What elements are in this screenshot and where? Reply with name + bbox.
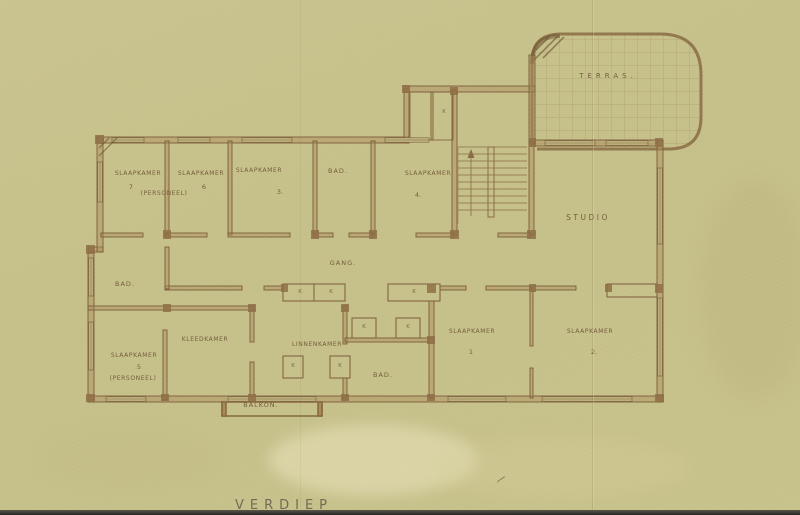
label-bad-boven: BAD.	[328, 168, 348, 175]
scanned-floor-plan-photo: TERRAS. STUDIO GANG. SLAAPKAMER 7 (PERSO…	[0, 0, 800, 515]
number-slaapkamer-6: 6	[202, 184, 206, 191]
label-slaapkamer-4: SLAAPKAMER	[405, 171, 451, 177]
terrace-tile-grid	[532, 34, 701, 149]
sublabel-personeel-7: (PERSONEEL)	[141, 191, 188, 197]
number-slaapkamer-1: 1	[469, 349, 473, 356]
label-gang: GANG.	[330, 260, 356, 267]
number-slaapkamer-7: 7	[129, 184, 133, 191]
label-slaapkamer-1: SLAAPKAMER	[449, 329, 495, 335]
label-balkon: BALKON.	[243, 402, 278, 409]
closet-k-label: K	[362, 325, 366, 331]
label-linnenkamer: LINNENKAMER	[292, 342, 342, 348]
closet-k-label: K	[291, 364, 295, 370]
label-slaapkamer-3: SLAAPKAMER	[236, 168, 282, 174]
closet-k-label: K	[298, 290, 302, 296]
closet-k-label: K	[329, 290, 333, 296]
number-slaapkamer-4: 4.	[415, 192, 421, 199]
photo-edge	[0, 510, 800, 515]
closet-k-label: K	[406, 325, 410, 331]
closet-k-label: K	[442, 110, 446, 116]
sublabel-personeel-5: (PERSONEEL)	[110, 376, 157, 382]
label-slaapkamer-7: SLAAPKAMER	[115, 171, 161, 177]
label-terras: TERRAS.	[579, 73, 637, 80]
label-slaapkamer-5: SLAAPKAMER	[111, 353, 157, 359]
number-slaapkamer-3: 3.	[277, 189, 283, 196]
staircase	[458, 147, 527, 224]
label-slaapkamer-6: SLAAPKAMER	[178, 171, 224, 177]
number-slaapkamer-2: 2.	[591, 349, 597, 356]
label-slaapkamer-2: SLAAPKAMER	[567, 329, 613, 335]
label-bad-links: BAD.	[115, 281, 135, 288]
window-openings	[89, 138, 662, 401]
closet-k-label: K	[412, 290, 416, 296]
closet-k-label: K	[338, 364, 342, 370]
floor-plan-linework	[0, 0, 800, 515]
label-studio: STUDIO	[566, 214, 610, 222]
label-bad-onder: BAD.	[373, 372, 393, 379]
number-slaapkamer-5: 5	[137, 364, 141, 371]
label-kleedkamer: KLEEDKAMER	[182, 337, 229, 343]
